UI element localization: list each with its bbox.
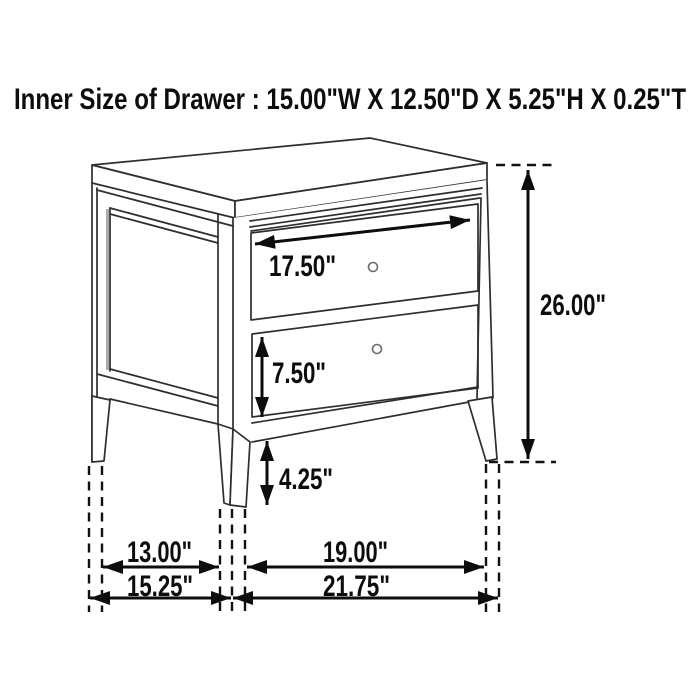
label-inner-depth: 13.00" — [127, 536, 192, 569]
label-overall-depth: 15.25" — [127, 570, 193, 603]
dimension-overall-depth: 15.25" — [90, 570, 231, 603]
label-leg-height: 4.25" — [279, 463, 333, 496]
top-drawer-knob-icon — [369, 263, 378, 272]
dimension-overall-width: 21.75" — [233, 570, 498, 603]
bottom-drawer-knob-icon — [373, 345, 382, 354]
label-overall-width: 21.75" — [323, 570, 390, 603]
diagram-title: Inner Size of Drawer : 15.00"W X 12.50"D… — [14, 83, 686, 116]
front-left-leg-front-face — [230, 429, 250, 507]
nightstand-drawing — [92, 138, 497, 507]
dimension-overall-height: 26.00" — [528, 170, 606, 459]
label-top-drawer-width: 17.50" — [269, 250, 336, 283]
label-inner-width: 19.00" — [323, 536, 388, 569]
label-overall-height: 26.00" — [540, 289, 606, 322]
diagram-canvas: Inner Size of Drawer : 15.00"W X 12.50"D… — [0, 0, 700, 700]
dimension-inner-width: 19.00" — [247, 536, 484, 569]
dimension-leg-height: 4.25" — [267, 441, 333, 505]
front-right-leg — [468, 397, 497, 461]
dimension-inner-depth: 13.00" — [103, 536, 219, 569]
label-bottom-drawer-height: 7.50" — [272, 357, 326, 390]
back-left-leg — [92, 396, 110, 462]
nightstand-dimension-diagram: Inner Size of Drawer : 15.00"W X 12.50"D… — [0, 0, 700, 700]
